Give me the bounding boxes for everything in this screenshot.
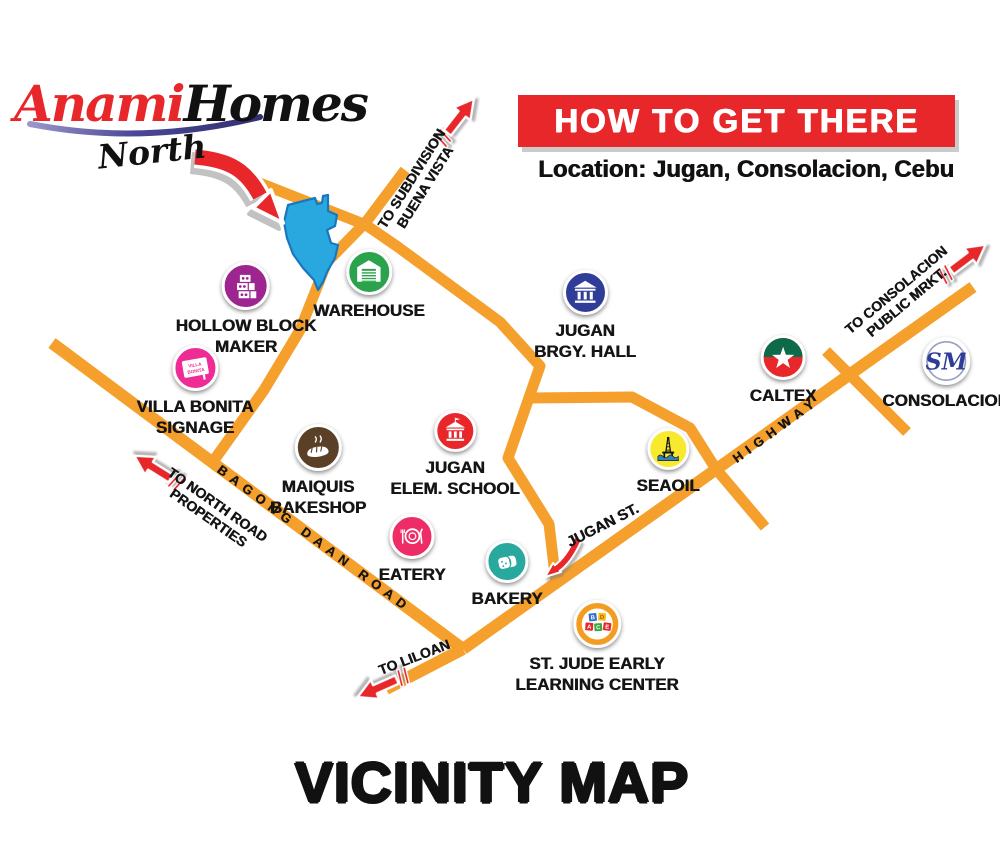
school-building-glyph [441, 417, 469, 445]
svg-text:D: D [599, 615, 604, 621]
logo-brand-red: Anami [14, 74, 183, 133]
site-pointer-arrow [195, 157, 283, 223]
seaoil-label: SEAOIL [636, 475, 699, 496]
eatery-label: EATERY [378, 564, 445, 585]
oil-rig-glyph [652, 433, 684, 465]
brgy-hall-icon [563, 270, 608, 315]
sm-consolacion-label: CONSOLACION [882, 390, 1000, 411]
warehouse-icon [346, 249, 392, 295]
bakeshop-label: MAIQUIS BAKESHOP [270, 476, 366, 518]
landmark-villa-bonita: VILLA BONITA VILLA BONITA SIGNAGE [136, 345, 253, 438]
hollow-block-icon [222, 262, 270, 310]
svg-text:E: E [604, 624, 609, 630]
eatery-icon [390, 514, 435, 559]
warehouse-label: WAREHOUSE [313, 300, 424, 321]
hollow-block-glyph [230, 270, 263, 303]
government-building-glyph [570, 277, 600, 307]
landmark-caltex: CALTEX [750, 335, 817, 406]
elem-school-icon [434, 410, 476, 452]
logo-brand-black: Homes [183, 74, 366, 133]
landmark-jugan-brgy-hall: JUGAN BRGY. HALL [534, 270, 636, 362]
bakeshop-icon [294, 424, 341, 471]
bread-loaf-glyph [493, 547, 522, 576]
landmark-warehouse: WAREHOUSE [313, 249, 424, 321]
seaoil-icon [647, 428, 689, 470]
how-to-get-there-banner: HOW TO GET THERE [518, 95, 955, 147]
svg-text:B: B [590, 615, 595, 621]
villa-bonita-label: VILLA BONITA SIGNAGE [136, 396, 253, 438]
st-jude-label: ST. JUDE EARLY LEARNING CENTER [515, 653, 678, 695]
elem-school-label: JUGAN ELEM. SCHOOL [390, 457, 519, 499]
landmark-jugan-elem-school: JUGAN ELEM. SCHOOL [390, 410, 519, 499]
logo: AnamiHomes [14, 74, 367, 133]
villa-bonita-icon: VILLA BONITA [172, 345, 218, 391]
landmark-bakery: BAKERY [471, 540, 542, 609]
bakery-icon [486, 540, 529, 583]
landmark-maiquis-bakeshop: MAIQUIS BAKESHOP [270, 424, 366, 518]
sm-mall-icon: SM [922, 337, 970, 385]
landmark-seaoil: SEAOIL [636, 428, 699, 496]
landmark-sm-consolacion: SM CONSOLACION [882, 337, 1000, 411]
st-jude-icon: B D A C E [573, 600, 621, 648]
svg-text:SM: SM [925, 348, 967, 375]
landmark-hollow-block-maker: HOLLOW BLOCK MAKER [176, 262, 317, 357]
location-text: Location: Jugan, Consolacion, Cebu [538, 156, 954, 184]
landmark-st-jude: B D A C E ST. JUDE EARLY LEARNING CENTER [515, 600, 678, 695]
vicinity-map-canvas: AnamiHomes North HOW TO GET THERE Locati… [0, 0, 1000, 842]
page-title: VICINITY MAP [295, 750, 689, 816]
plate-cutlery-glyph [397, 521, 427, 551]
alphabet-blocks-glyph: B D A C E [576, 603, 618, 645]
villa-bonita-sign-glyph: VILLA BONITA [175, 348, 215, 388]
caltex-icon [761, 335, 806, 380]
warehouse-glyph [353, 256, 384, 287]
brgy-hall-label: JUGAN BRGY. HALL [534, 320, 636, 362]
sm-logo-glyph: SM [925, 340, 967, 382]
caltex-label: CALTEX [750, 385, 817, 406]
landmark-eatery: EATERY [378, 514, 445, 585]
caltex-star-glyph [764, 338, 803, 377]
bread-steam-glyph [302, 432, 334, 464]
